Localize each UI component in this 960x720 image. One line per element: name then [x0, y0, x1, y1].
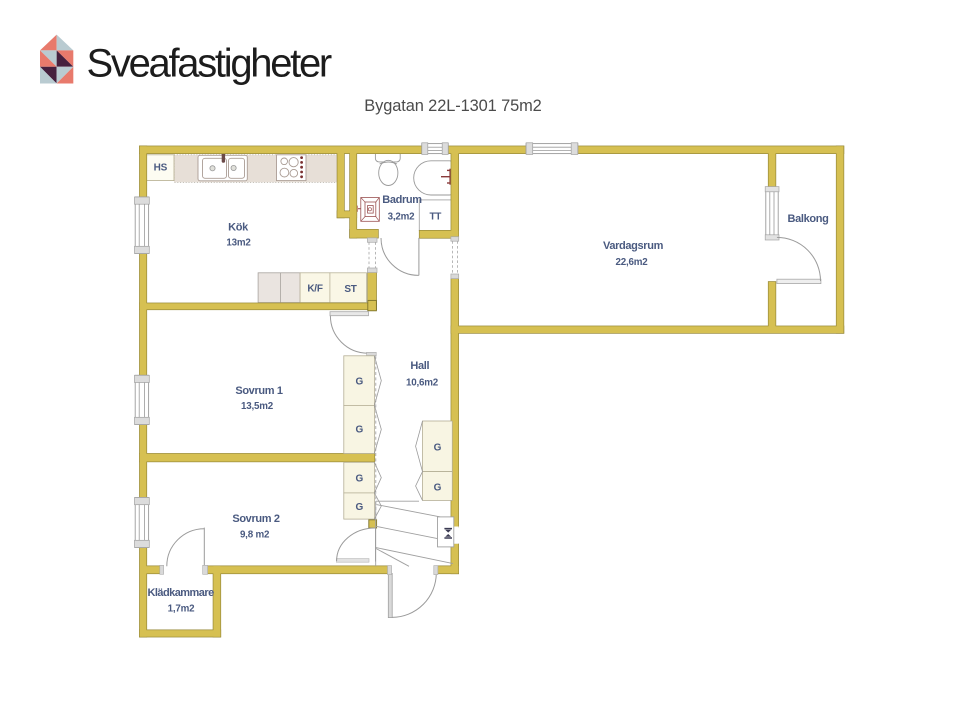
svg-text:Klädkammare: Klädkammare: [148, 587, 215, 599]
svg-text:Hall: Hall: [410, 360, 429, 372]
svg-text:10,6m2: 10,6m2: [406, 378, 439, 389]
svg-text:G: G: [356, 377, 364, 388]
svg-text:G: G: [356, 425, 364, 436]
svg-text:9,8 m2: 9,8 m2: [240, 529, 270, 540]
svg-text:G: G: [356, 502, 364, 513]
svg-text:22,6m2: 22,6m2: [615, 257, 648, 268]
svg-text:G: G: [434, 443, 442, 454]
svg-text:1,7m2: 1,7m2: [168, 604, 196, 615]
svg-text:Balkong: Balkong: [788, 213, 829, 225]
svg-text:3,2m2: 3,2m2: [388, 212, 416, 223]
svg-text:13m2: 13m2: [226, 238, 251, 249]
svg-text:Sovrum 1: Sovrum 1: [235, 385, 283, 397]
svg-text:Vardagsrum: Vardagsrum: [603, 240, 664, 252]
svg-text:Kök: Kök: [228, 222, 249, 234]
svg-text:ST: ST: [344, 284, 356, 295]
svg-text:Sveafastigheter: Sveafastigheter: [87, 42, 332, 86]
svg-text:K/F: K/F: [307, 284, 323, 295]
svg-text:Sovrum 2: Sovrum 2: [232, 513, 280, 525]
svg-text:Bygatan 22L-1301 75m2: Bygatan 22L-1301 75m2: [364, 97, 541, 115]
svg-text:13,5m2: 13,5m2: [241, 401, 274, 412]
svg-text:HS: HS: [154, 163, 168, 174]
svg-text:Badrum: Badrum: [382, 194, 422, 206]
svg-text:TT: TT: [429, 212, 441, 223]
svg-text:G: G: [356, 474, 364, 485]
svg-text:G: G: [434, 483, 442, 494]
